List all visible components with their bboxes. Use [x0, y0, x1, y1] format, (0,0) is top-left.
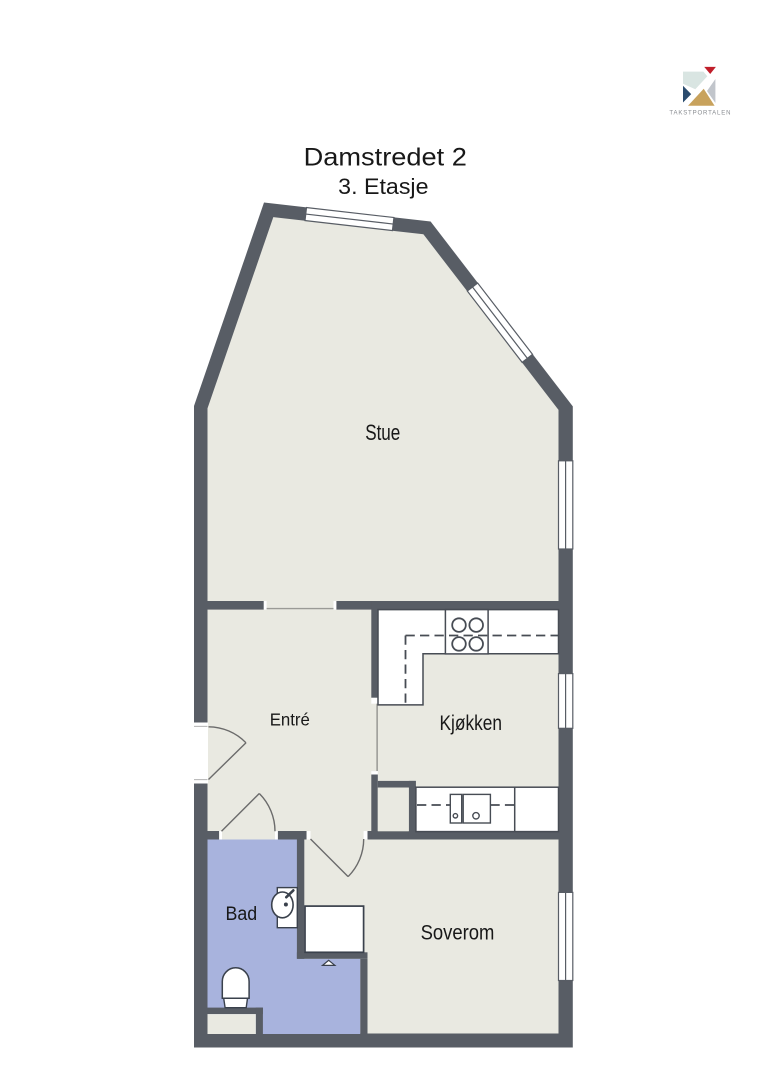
- svg-text:Soverom: Soverom: [421, 919, 495, 944]
- svg-text:Damstredet 2: Damstredet 2: [304, 143, 467, 171]
- svg-text:3. Etasje: 3. Etasje: [338, 174, 428, 199]
- svg-text:Entré: Entré: [270, 710, 310, 730]
- svg-text:TAKSTPORTALEN: TAKSTPORTALEN: [669, 110, 731, 117]
- svg-text:Kjøkken: Kjøkken: [440, 712, 503, 735]
- svg-text:Stue: Stue: [365, 420, 400, 445]
- svg-text:Bad: Bad: [226, 903, 258, 925]
